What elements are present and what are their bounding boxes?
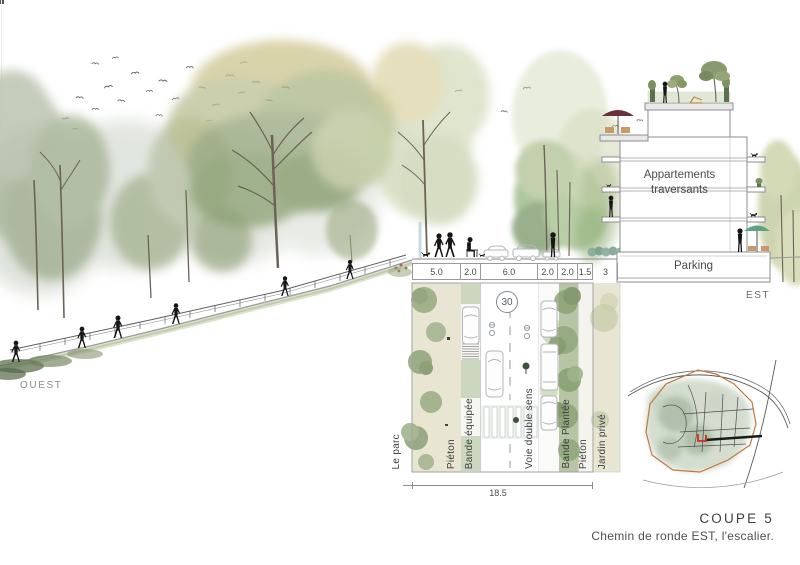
caption-subtitle: Chemin de ronde EST, l'escalier. <box>591 529 774 543</box>
label-le-parc: Le parc <box>391 434 402 469</box>
site-map-green-area <box>646 379 751 472</box>
speed-limit-sign: 30 <box>496 291 518 313</box>
lamp-post <box>419 222 422 258</box>
label-bande-equipee: Bande équipée <box>464 398 475 469</box>
roof-garden <box>648 61 730 103</box>
east-compass-label: EST <box>746 290 770 301</box>
label-pieton-west: Piéton <box>446 439 457 469</box>
apartments-label-line1: Appartements <box>619 168 740 183</box>
section-plan-artwork <box>0 0 800 565</box>
small-tree <box>326 200 378 260</box>
street-left-tree-canopy <box>368 42 490 225</box>
apartments-label-line2: traversants <box>619 183 740 198</box>
dimension-1-5m: 1.5 <box>578 264 592 279</box>
dimension-2m-b: 2.0 <box>538 264 558 279</box>
total-width-dimension-line <box>403 485 593 486</box>
setback-dimension-tick <box>617 263 618 280</box>
total-width-value: 18.5 <box>470 488 526 498</box>
west-compass-label: OUEST <box>20 380 62 391</box>
apartments-label: Appartements traversants <box>619 168 740 198</box>
label-bande-plantee: Bande Plantée <box>561 399 572 469</box>
label-jardin-prive: Jardin privé <box>597 414 608 469</box>
total-width-tick-left <box>412 482 413 489</box>
street-dimension-strip: 5.0 2.0 6.0 2.0 2.0 1.5 <box>412 263 593 280</box>
label-pieton-east: Piéton <box>578 439 589 469</box>
total-width-tick-right <box>592 482 593 489</box>
drawing-caption: COUPE 5 Chemin de ronde EST, l'escalier. <box>591 511 774 543</box>
setback-dimension: 3 <box>593 263 618 280</box>
drawing-sheet: OUEST EST Appartements traversants Parki… <box>0 0 800 565</box>
dimension-5m: 5.0 <box>413 264 461 279</box>
west-landscape-section <box>0 40 412 380</box>
plan-stairs <box>462 344 479 359</box>
site-map <box>628 360 790 488</box>
far-left-trees <box>0 70 110 280</box>
dimension-2m-c: 2.0 <box>558 264 578 279</box>
label-voie-double-sens: Voie double sens <box>524 388 535 469</box>
parking-label: Parking <box>617 260 770 272</box>
caption-title: COUPE 5 <box>591 511 774 526</box>
dimension-2m-a: 2.0 <box>461 264 481 279</box>
dimension-6m: 6.0 <box>481 264 538 279</box>
